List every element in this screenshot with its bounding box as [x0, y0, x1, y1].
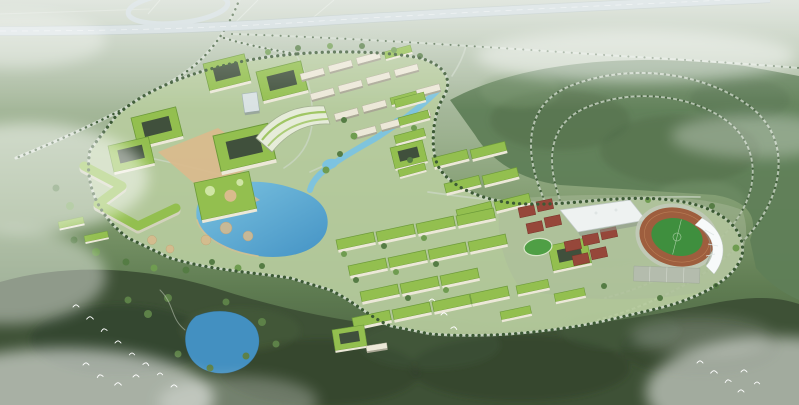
tree-clump [381, 243, 387, 249]
tree-clump [144, 310, 152, 318]
tree-clump [657, 295, 663, 301]
tree-clump [151, 265, 158, 272]
roof-vent [595, 212, 598, 215]
parking-lot [633, 266, 699, 283]
tree-clump [223, 299, 230, 306]
tree-clump [125, 297, 132, 304]
tree-clump [709, 203, 715, 209]
tree-clump [259, 263, 265, 269]
tree-clump [733, 245, 740, 252]
playground-pad [243, 231, 253, 241]
tree-clump [341, 251, 347, 257]
tree-clump [353, 277, 359, 283]
tree-clump [443, 287, 449, 293]
tree-clump [209, 259, 215, 265]
tree-clump [183, 267, 190, 274]
tree-clump [207, 365, 214, 372]
tree-clump [337, 151, 343, 157]
roof-vent [615, 209, 618, 212]
tree-clump [407, 157, 413, 163]
rendering-viewport [0, 0, 799, 405]
playground-pad [166, 245, 174, 253]
playground-pad [148, 236, 157, 245]
tree-clump [411, 125, 417, 131]
playground-pad [220, 222, 232, 234]
forest-lake [185, 311, 259, 373]
tree-clump [405, 295, 411, 301]
playground-pad [201, 235, 211, 245]
tree-clump [341, 117, 347, 123]
tree-clump [258, 318, 266, 326]
tree-clump [351, 133, 358, 140]
tree-clump [243, 353, 250, 360]
tree-clump [393, 269, 399, 275]
tree-clump [123, 259, 130, 266]
tree-clump [273, 341, 280, 348]
tree-clump [433, 261, 439, 267]
tree-clump [323, 167, 330, 174]
tree-clump [421, 235, 427, 241]
mist-cloud [476, 30, 796, 82]
tree-clump [175, 351, 182, 358]
tree-clump [601, 283, 607, 289]
campus-aerial-rendering [0, 0, 799, 405]
